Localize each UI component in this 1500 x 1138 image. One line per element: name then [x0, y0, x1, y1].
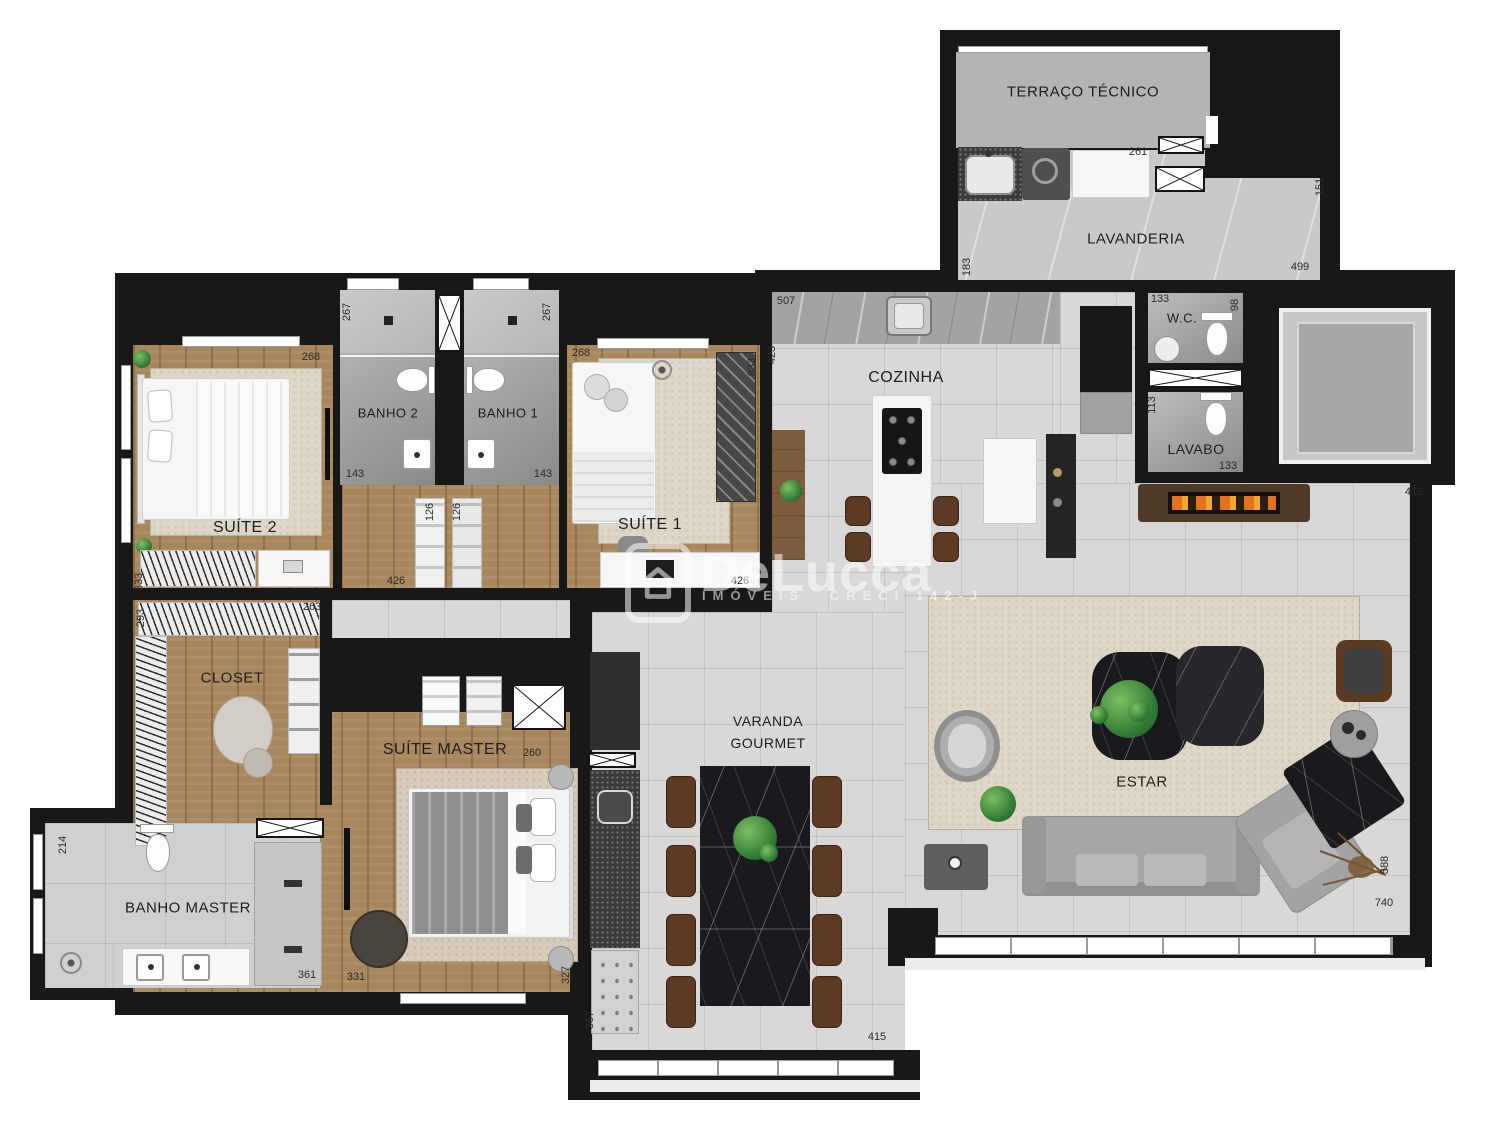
- dimension-label: 415: [868, 1031, 886, 1043]
- plant-icon: [133, 350, 151, 368]
- room-label-estar: ESTAR: [1116, 774, 1167, 791]
- room-label-wc: W.C.: [1167, 311, 1197, 326]
- dining-chair: [812, 976, 842, 1028]
- window-estar-bottom: [935, 937, 1393, 955]
- dining-chair: [812, 914, 842, 966]
- master-tv: [344, 828, 350, 910]
- room-label-banho2: BANHO 2: [358, 406, 419, 421]
- dimension-label: 113: [1146, 396, 1158, 414]
- plant-icon: [780, 480, 802, 502]
- bm-cabinet: [254, 842, 322, 986]
- laundry-sink: [965, 155, 1015, 195]
- bm-cabinet-handle: [284, 946, 302, 953]
- dimension-label: 426: [387, 575, 405, 587]
- banho2-glass: [340, 355, 435, 357]
- suite2-pillow: [147, 429, 173, 463]
- island-stool: [933, 532, 959, 562]
- island-stool: [933, 496, 959, 526]
- dimension-label: 268: [572, 347, 590, 359]
- dimension-label: 268: [302, 351, 320, 363]
- lavabo-toilet-tank: [1200, 392, 1232, 401]
- laundry-faucet: [985, 150, 992, 157]
- banho1-shower-head-icon: [508, 316, 517, 325]
- wall-closet-right: [320, 600, 332, 805]
- suite2-laptop: [283, 560, 303, 573]
- dimension-label: 740: [1375, 897, 1393, 909]
- room-label-lavabo: LAVABO: [1168, 441, 1225, 457]
- room-label-terraco: TERRAÇO TÉCNICO: [1007, 84, 1159, 101]
- wall-suite1-left: [559, 290, 567, 588]
- dimension-label: 331: [347, 971, 365, 983]
- shaft-duct-icon: [437, 294, 462, 352]
- dimension-label: 98: [1229, 299, 1241, 311]
- bm-toilet-tank: [140, 824, 174, 833]
- dimension-label: 133: [1151, 293, 1169, 305]
- dimension-label: 327: [560, 966, 572, 984]
- master-cushion: [516, 846, 532, 874]
- dining-chair: [666, 845, 696, 897]
- window-banho2: [347, 278, 399, 290]
- banho1-toilet-tank: [466, 366, 473, 394]
- dimension-label: 588: [1379, 856, 1391, 874]
- dimension-label: 367: [584, 1011, 596, 1029]
- room-label-varanda-2: GOURMET: [730, 735, 805, 751]
- window-terraco: [958, 46, 1208, 53]
- foyer-cabinet: [1080, 306, 1132, 394]
- sofa-arm: [1022, 816, 1046, 894]
- sofa-back: [1022, 882, 1260, 896]
- dimension-label: 499: [1291, 261, 1309, 273]
- banho2-toilet-bowl: [396, 368, 428, 392]
- dimension-label: 423: [766, 346, 778, 364]
- tray-icon: [1356, 730, 1366, 740]
- varanda-grill: [591, 950, 639, 1034]
- room-label-banho-master: BANHO MASTER: [125, 900, 251, 917]
- suite2-tv: [325, 408, 330, 480]
- dining-chair: [812, 845, 842, 897]
- dimension-label: 133: [1219, 460, 1237, 472]
- master-rack: [422, 676, 460, 726]
- window-suite-master-bottom: [400, 993, 526, 1004]
- round-side-table: [1330, 710, 1378, 758]
- watermark-subtitle: IMÓVEIS CRECI 142-J: [702, 588, 984, 603]
- island-stool: [845, 496, 871, 526]
- sofa-cushion: [1076, 854, 1138, 886]
- floor-plan: TERRAÇO TÉCNICO LAVANDERIA W.C. LAVABO C…: [0, 0, 1500, 1138]
- plant-icon: [760, 844, 778, 862]
- kitchen-sink-basin: [894, 303, 924, 329]
- table-lamp-icon: [948, 856, 962, 870]
- room-label-lavanderia: LAVANDERIA: [1087, 231, 1185, 248]
- dry-branch-pot: [1348, 856, 1374, 878]
- shaft-duct-icon: [512, 684, 566, 730]
- master-duvet: [412, 792, 514, 934]
- foyer-bar: [1046, 434, 1076, 558]
- bar-bottle-icon: [1053, 498, 1062, 507]
- suite2-duvet: [196, 382, 288, 516]
- dimension-label: 143: [534, 468, 552, 480]
- watermark-sub-right: CRECI 142-J: [830, 588, 984, 603]
- shaft-duct-icon: [1158, 136, 1204, 154]
- dimension-label: 183: [961, 258, 973, 276]
- watermark-sub-left: IMÓVEIS: [702, 588, 805, 603]
- window-suite2-left1: [121, 365, 131, 450]
- master-rack: [466, 676, 502, 726]
- tray-icon: [1342, 722, 1354, 734]
- plant-icon: [1090, 706, 1108, 724]
- bm-faucet: [148, 964, 154, 970]
- cooktop: [882, 408, 922, 474]
- suite2-pillow: [147, 389, 173, 423]
- dimension-label: 260: [523, 747, 541, 759]
- dimension-label: 261: [1129, 146, 1147, 158]
- dimension-label: 126: [424, 503, 436, 521]
- washer-door: [1032, 158, 1058, 184]
- plant-icon: [980, 786, 1016, 822]
- master-pillow: [530, 844, 556, 882]
- dimension-label: 361: [298, 969, 316, 981]
- suite1-duvet: [574, 452, 654, 522]
- window-suite2-top: [182, 336, 300, 347]
- dimension-label: 151: [1314, 178, 1326, 196]
- closet-rack-top: [138, 602, 320, 636]
- dining-chair: [666, 914, 696, 966]
- dimension-label: 333: [133, 573, 145, 591]
- dining-chair: [666, 776, 696, 828]
- closet-rack-left: [135, 636, 167, 846]
- plant-icon: [1128, 700, 1150, 722]
- foyer-console: [983, 438, 1037, 524]
- varanda-sink: [597, 790, 633, 824]
- dimension-label: 412: [1405, 486, 1423, 498]
- wc-toilet-bowl: [1206, 322, 1228, 356]
- wc-sink: [1154, 336, 1180, 362]
- dining-table: [700, 766, 810, 1006]
- banho2-shower-head-icon: [384, 316, 393, 325]
- dining-chair: [812, 776, 842, 828]
- banho2-faucet: [414, 452, 420, 458]
- shaft-duct-icon: [588, 752, 636, 768]
- dimension-label: 267: [541, 303, 553, 321]
- armchair-seat: [948, 724, 986, 768]
- shaft-duct-icon: [256, 818, 324, 838]
- dimension-label: 214: [57, 836, 69, 854]
- master-pillow: [530, 798, 556, 836]
- banho2-toilet-tank: [428, 366, 435, 394]
- banho1-glass: [464, 355, 559, 357]
- ceiling-fan-icon: [652, 360, 672, 380]
- terraco-door-notch: [1206, 116, 1218, 144]
- wc-toilet-tank: [1201, 312, 1233, 321]
- sofa-cushion: [1144, 854, 1206, 886]
- suite1-pillow: [604, 388, 628, 412]
- master-ottoman: [350, 910, 408, 968]
- master-hall-floor: [332, 600, 570, 638]
- dimension-label: 293: [135, 609, 147, 627]
- master-cushion: [516, 804, 532, 832]
- lavanderia-step: [1205, 150, 1340, 178]
- foyer-cabinet-base: [1080, 392, 1132, 434]
- bm-cabinet-handle: [284, 880, 302, 887]
- room-label-suite1: SUÍTE 1: [618, 516, 682, 534]
- dimension-label: 267: [341, 303, 353, 321]
- lavabo-toilet-bowl: [1205, 402, 1227, 436]
- dimension-label: 507: [777, 295, 795, 307]
- dimension-label: 143: [346, 468, 364, 480]
- dimension-label: 126: [451, 503, 463, 521]
- window-suite1-top: [597, 338, 709, 349]
- room-label-closet: CLOSET: [200, 670, 263, 687]
- suite2-wardrobe: [140, 550, 256, 587]
- bm-shower-drain-icon: [60, 952, 82, 974]
- elevator-hall-inner: [1297, 322, 1415, 454]
- closet-shoe-rack: [288, 648, 320, 754]
- room-label-varanda-1: VARANDA: [733, 713, 803, 729]
- bm-faucet: [194, 964, 200, 970]
- room-label-banho1: BANHO 1: [478, 406, 539, 421]
- window-banho-master1: [33, 834, 43, 890]
- window-suite2-left2: [121, 458, 131, 543]
- varanda-cabinet: [590, 652, 640, 750]
- fireplace-flames: [1172, 496, 1276, 510]
- window-banho1: [473, 278, 529, 290]
- dining-chair: [666, 976, 696, 1028]
- wood-accent-chair-seat: [1344, 648, 1384, 694]
- banho1-toilet-bowl: [473, 368, 505, 392]
- banho1-faucet: [478, 452, 484, 458]
- shaft-duct-icon: [1148, 368, 1243, 388]
- window-banho-master2: [33, 898, 43, 954]
- bm-glass: [112, 944, 114, 988]
- balcony-slab-bottom: [590, 1080, 920, 1092]
- master-nightstand: [548, 764, 574, 790]
- watermark-logo-icon: [625, 543, 691, 623]
- bar-bottle-icon: [1053, 468, 1062, 477]
- dimension-label: 263: [303, 601, 321, 613]
- room-label-suite2: SUÍTE 2: [213, 519, 277, 537]
- bm-toilet-bowl: [146, 834, 170, 872]
- window-varanda-bottom: [598, 1060, 894, 1076]
- closet-stool: [243, 748, 273, 778]
- coffee-table: [1176, 646, 1264, 746]
- room-label-suite-master: SUÍTE MASTER: [383, 741, 507, 759]
- dining-table-seam: [700, 928, 810, 930]
- dimension-label: 833: [746, 358, 758, 376]
- balcony-slab-right: [905, 958, 1425, 970]
- shaft-duct-icon: [1155, 166, 1205, 192]
- room-label-cozinha: COZINHA: [868, 369, 944, 387]
